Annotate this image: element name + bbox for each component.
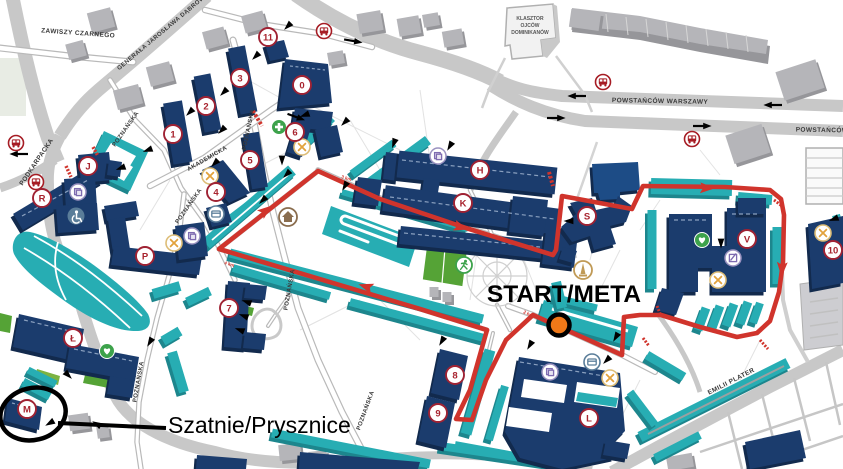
svg-text:6: 6 (292, 127, 297, 138)
svg-text:KLASZTOR: KLASZTOR (516, 16, 544, 22)
svg-text:M: M (23, 404, 31, 415)
svg-text:V: V (744, 234, 751, 245)
svg-text:R: R (39, 193, 46, 204)
svg-text:J: J (85, 161, 90, 172)
svg-text:Ł: Ł (70, 333, 76, 344)
svg-text:Szatnie/Prysznice: Szatnie/Prysznice (168, 412, 351, 438)
svg-text:START/META: START/META (487, 281, 642, 308)
svg-text:10: 10 (828, 245, 839, 256)
svg-text:3: 3 (237, 73, 242, 84)
svg-text:8: 8 (452, 370, 457, 381)
svg-text:P: P (142, 251, 149, 262)
svg-text:0: 0 (299, 80, 304, 91)
svg-text:11: 11 (263, 32, 274, 43)
svg-text:1: 1 (170, 129, 176, 140)
svg-text:L: L (586, 413, 592, 424)
svg-text:DOMINIKANÓW: DOMINIKANÓW (511, 28, 549, 36)
svg-text:7: 7 (226, 303, 231, 314)
svg-text:5: 5 (247, 155, 253, 166)
svg-text:OJCÓW: OJCÓW (521, 21, 540, 29)
svg-text:H: H (477, 165, 484, 176)
svg-text:K: K (460, 198, 467, 209)
svg-text:4: 4 (213, 187, 219, 198)
svg-text:S: S (584, 211, 590, 222)
svg-text:9: 9 (435, 408, 440, 419)
svg-text:2: 2 (203, 101, 208, 112)
